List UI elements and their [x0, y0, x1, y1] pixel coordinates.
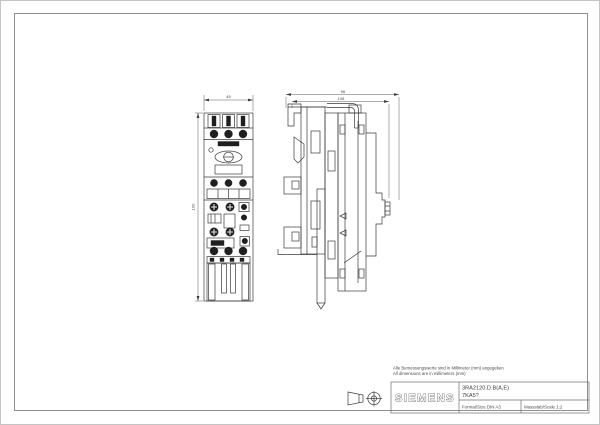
side-view: 96 108 — [278, 89, 399, 309]
side-depth-lower-dimension: 108 — [338, 96, 345, 101]
note-line-de: Alle Bemessungswerte sind in Millimeter … — [393, 366, 504, 371]
title-block: SIEMENS 3RA2120.D.B(A,E) 7KA5? Format/Si… — [391, 382, 589, 413]
scale-label: Massstab/Scale 1:2 — [524, 405, 563, 410]
front-view: 45 190 — [191, 94, 254, 301]
technical-drawing: 45 190 — [1, 1, 600, 425]
part-number-line2: 7KA5? — [462, 393, 479, 399]
dimension-notes: Alle Bemessungswerte sind in Millimeter … — [393, 366, 504, 377]
side-depth-upper-dimension: 96 — [341, 89, 346, 94]
siemens-logo: SIEMENS — [395, 393, 455, 405]
part-number-line1: 3RA2120.D.B(A,E) — [462, 386, 509, 392]
front-height-dimension: 190 — [191, 203, 196, 210]
front-width-dimension: 45 — [226, 94, 231, 99]
drawing-sheet: 45 190 — [0, 0, 600, 425]
note-line-en: All dimensions are in millimeters (mm) — [393, 371, 466, 376]
format-size-label: Format/Size DIN A3 — [462, 405, 501, 410]
first-angle-projection-symbol — [348, 391, 382, 407]
